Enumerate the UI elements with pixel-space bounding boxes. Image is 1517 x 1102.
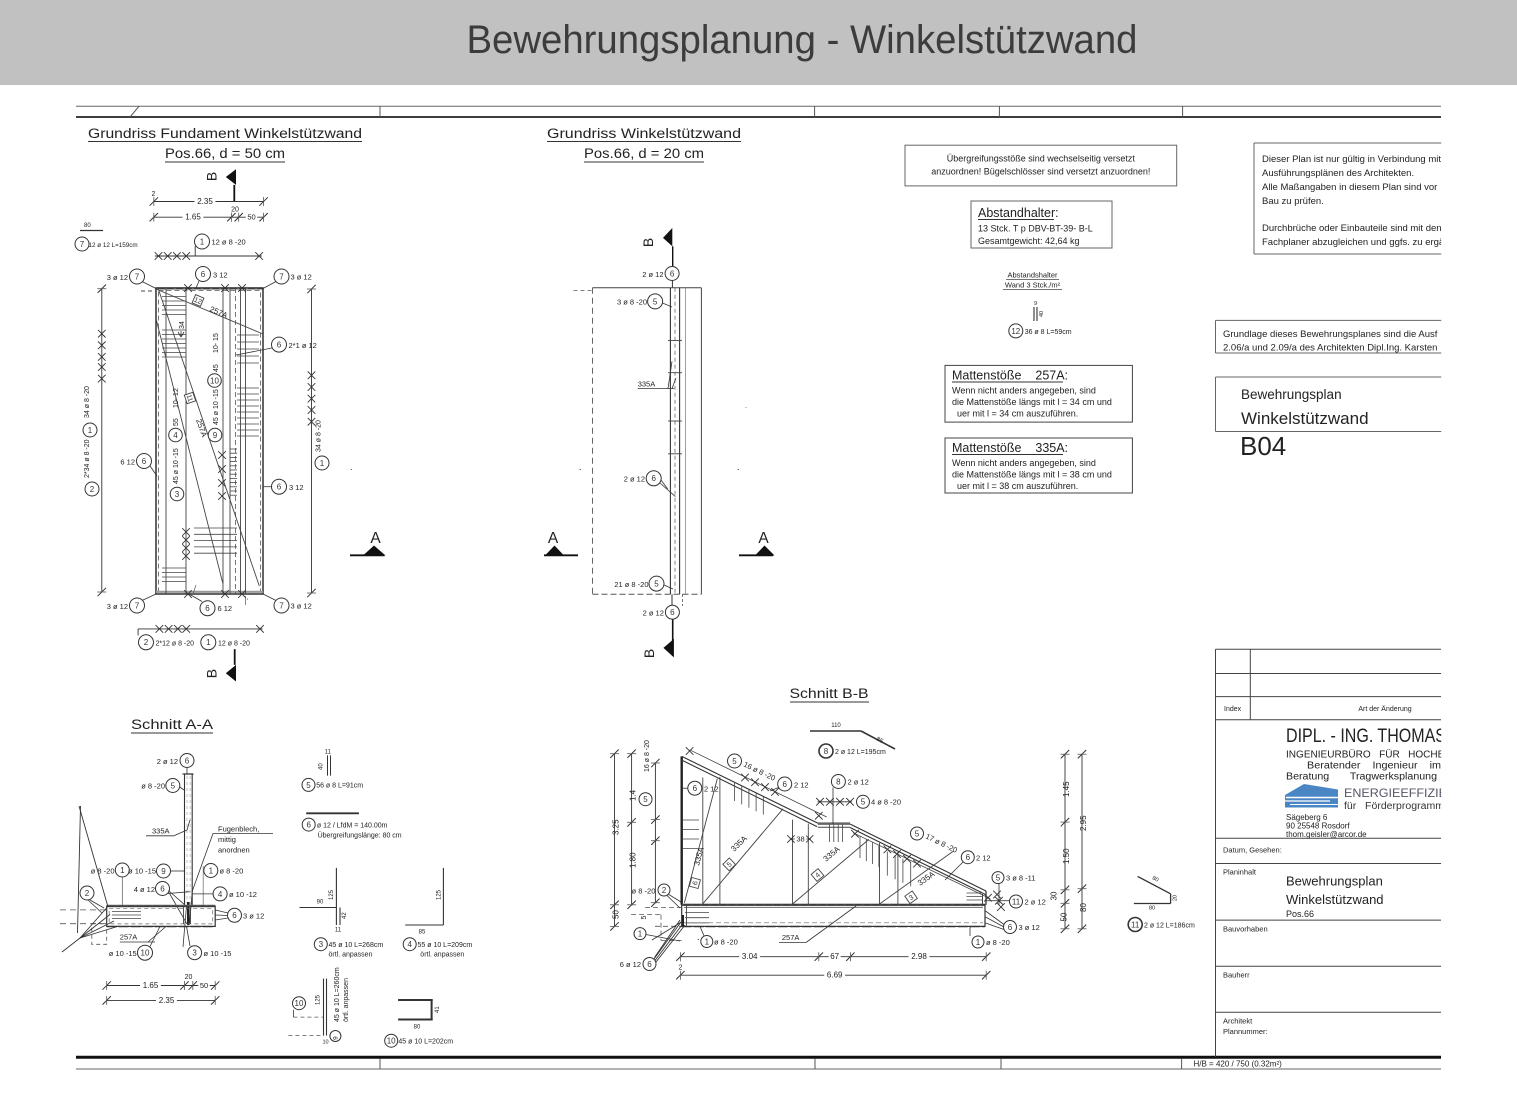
- svg-text:2: 2: [90, 485, 95, 494]
- svg-text:Dieser Plan ist nur gültig in: Dieser Plan ist nur gültig in Verbindung…: [1262, 154, 1460, 165]
- svg-text:örtl. anpassen: örtl. anpassen: [343, 978, 350, 1022]
- svg-text:56 ø 8 L=91cm: 56 ø 8 L=91cm: [316, 783, 363, 790]
- svg-text:Art der Änderung: Art der Änderung: [1358, 705, 1411, 713]
- svg-text:2 12: 2 12: [976, 854, 991, 863]
- svg-text:11: 11: [1131, 920, 1140, 929]
- svg-text:.: .: [737, 462, 740, 472]
- svg-text:5: 5: [643, 795, 648, 804]
- svg-text:335A: 335A: [822, 844, 843, 863]
- svg-text:17 ø 8 -20: 17 ø 8 -20: [924, 832, 959, 855]
- svg-text:20: 20: [231, 207, 239, 214]
- svg-text:1: 1: [200, 237, 205, 246]
- svg-text:2.98: 2.98: [911, 952, 927, 961]
- svg-text:.: .: [745, 403, 747, 410]
- svg-text:6: 6: [647, 960, 652, 969]
- svg-text:335A: 335A: [729, 834, 749, 854]
- svg-text:1: 1: [638, 930, 643, 939]
- svg-text:10- 15: 10- 15: [213, 333, 220, 353]
- svg-text:3 ø 12: 3 ø 12: [243, 912, 264, 921]
- svg-text:ø 8 -20: ø 8 -20: [714, 938, 738, 947]
- svg-text:B: B: [204, 172, 220, 181]
- svg-text:1: 1: [88, 426, 93, 435]
- svg-text:10: 10: [322, 1040, 328, 1046]
- svg-text:6: 6: [160, 884, 165, 893]
- svg-text:2: 2: [152, 191, 156, 198]
- svg-text:1.65: 1.65: [185, 213, 201, 222]
- svg-text:3 ø 12: 3 ø 12: [291, 273, 312, 282]
- svg-text:5: 5: [653, 297, 658, 306]
- svg-text:3: 3: [192, 949, 197, 958]
- svg-text:7: 7: [279, 272, 284, 281]
- svg-text:A: A: [548, 530, 559, 547]
- svg-text:örtl. anpassen: örtl. anpassen: [420, 952, 464, 959]
- svg-text:Abstandshalter: Abstandshalter: [1007, 271, 1058, 280]
- svg-text:40: 40: [319, 763, 325, 770]
- svg-text:Winkelstützwand: Winkelstützwand: [1241, 409, 1369, 428]
- svg-text:1.80: 1.80: [629, 852, 638, 868]
- svg-text:ø 12 / LfdM = 140.00m: ø 12 / LfdM = 140.00m: [317, 823, 388, 830]
- svg-text:257A: 257A: [208, 305, 229, 321]
- svg-text:3: 3: [175, 490, 180, 499]
- svg-text:mittig: mittig: [218, 835, 236, 844]
- svg-text:7: 7: [135, 601, 140, 610]
- svg-text:5: 5: [996, 874, 1001, 883]
- svg-text:ø 8 -20: ø 8 -20: [91, 867, 115, 876]
- svg-text:11: 11: [1012, 897, 1021, 906]
- svg-text:Abstandhalter:: Abstandhalter:: [978, 206, 1059, 220]
- svg-text:Grundriss Winkelstützwand: Grundriss Winkelstützwand: [547, 126, 741, 142]
- svg-text:34 ø 8 -20: 34 ø 8 -20: [316, 420, 323, 452]
- svg-text:ø 10 -12: ø 10 -12: [229, 890, 257, 899]
- svg-text:12: 12: [1011, 327, 1020, 336]
- svg-text:Grundlage dieses Bewehrungspla: Grundlage dieses Bewehrungsplanes sind d…: [1223, 329, 1438, 340]
- svg-text:20: 20: [185, 974, 193, 981]
- svg-text:9: 9: [213, 431, 218, 440]
- svg-text:10- 12: 10- 12: [173, 388, 180, 408]
- svg-text:anordnen: anordnen: [218, 846, 250, 855]
- svg-text:34 ø 8 -20: 34 ø 8 -20: [84, 386, 91, 418]
- svg-text:Schnitt B-B: Schnitt B-B: [790, 686, 869, 702]
- svg-text:10: 10: [210, 376, 219, 385]
- svg-text:21 ø 8 -20: 21 ø 8 -20: [614, 580, 648, 589]
- svg-text:Plannummer:: Plannummer:: [1223, 1027, 1268, 1036]
- svg-text:50: 50: [247, 213, 255, 222]
- svg-text:16 ø 8 -20: 16 ø 8 -20: [644, 740, 651, 772]
- svg-text:6: 6: [201, 270, 206, 279]
- svg-text:12 ø 8 -20: 12 ø 8 -20: [212, 238, 246, 247]
- svg-text:uer mit l = 34 cm auszuführen.: uer mit l = 34 cm auszuführen.: [957, 409, 1078, 419]
- svg-text:85: 85: [419, 930, 426, 936]
- svg-text:257A: 257A: [782, 933, 800, 942]
- svg-text:3: 3: [319, 940, 324, 949]
- svg-text:12 ø 8 -20: 12 ø 8 -20: [218, 640, 250, 647]
- svg-text:6.69: 6.69: [827, 971, 843, 980]
- svg-text:Pos.66, d = 50 cm: Pos.66, d = 50 cm: [165, 146, 285, 162]
- svg-text:5: 5: [654, 580, 659, 589]
- svg-text:5: 5: [732, 757, 737, 766]
- svg-text:6: 6: [277, 341, 282, 350]
- svg-text:10: 10: [295, 999, 304, 1008]
- svg-text:42: 42: [342, 912, 348, 919]
- svg-text:6: 6: [232, 911, 237, 920]
- svg-text:Alle Maßangaben in diesem Plan: Alle Maßangaben in diesem Plan sind vor: [1262, 182, 1437, 193]
- svg-text:die Mattenstöße längs mit l =: die Mattenstöße längs mit l = 34 cm und: [952, 397, 1112, 407]
- svg-text:Mattenstöße 257A:: Mattenstöße 257A:: [952, 369, 1068, 383]
- svg-text:2: 2: [679, 965, 683, 972]
- svg-text:Durchbrüche oder Einbauteile s: Durchbrüche oder Einbauteile sind mit de…: [1262, 223, 1442, 234]
- svg-text:B: B: [640, 238, 656, 247]
- svg-text:2: 2: [85, 889, 90, 898]
- svg-text:2.06/a und 2.09/a des Architek: 2.06/a und 2.09/a des Architekten Dipl.I…: [1223, 343, 1437, 354]
- svg-text:3 12: 3 12: [289, 483, 304, 492]
- svg-text:2: 2: [144, 638, 149, 647]
- svg-text:Pos.66, d = 20 cm: Pos.66, d = 20 cm: [584, 146, 704, 162]
- svg-text:Wenn nicht anders angegeben, s: Wenn nicht anders angegeben, sind: [952, 386, 1096, 396]
- svg-text:3 ø 8 -20: 3 ø 8 -20: [617, 298, 647, 307]
- svg-text:Beratender Ingenieur im: Beratender Ingenieur im: [1307, 761, 1441, 772]
- svg-text:335A: 335A: [638, 380, 656, 389]
- svg-text:80: 80: [1149, 906, 1155, 912]
- svg-text:ø 8 -20: ø 8 -20: [632, 887, 656, 896]
- svg-text:45 ø 10 L=202cm: 45 ø 10 L=202cm: [398, 1039, 453, 1046]
- svg-text:Grundriss Fundament Winkelstüt: Grundriss Fundament Winkelstützwand: [88, 126, 362, 142]
- svg-text:3 ø 12: 3 ø 12: [107, 602, 128, 611]
- svg-text:6: 6: [693, 784, 698, 793]
- svg-text:3.04: 3.04: [742, 952, 758, 961]
- svg-text:Übergreifungsstöße sind wechse: Übergreifungsstöße sind wechselseitig ve…: [947, 154, 1136, 164]
- svg-text:90: 90: [317, 900, 324, 906]
- svg-text:1.65: 1.65: [143, 981, 159, 990]
- svg-text:6: 6: [966, 853, 971, 862]
- svg-text:Übergreifungslänge: 80 cm: Übergreifungslänge: 80 cm: [318, 832, 402, 840]
- svg-text:6: 6: [782, 780, 787, 789]
- svg-text:45 ø 10 -15: 45 ø 10 -15: [213, 389, 220, 425]
- svg-text:2.35: 2.35: [159, 996, 175, 1005]
- svg-text:8: 8: [836, 777, 841, 786]
- svg-text:7: 7: [135, 272, 140, 281]
- svg-text:20: 20: [1173, 895, 1179, 901]
- svg-text:Beratung Tragwerksplanun: Beratung Tragwerksplanung: [1286, 772, 1437, 783]
- svg-text:6 ø 12: 6 ø 12: [620, 960, 641, 969]
- svg-text:6 12: 6 12: [120, 458, 135, 467]
- svg-text:A: A: [758, 530, 769, 547]
- svg-text:7: 7: [80, 240, 85, 249]
- svg-text:2*12 ø 8 -20: 2*12 ø 8 -20: [156, 640, 195, 647]
- svg-text:13 Stck. T p DBV-BT-39- B-L: 13 Stck. T p DBV-BT-39- B-L: [978, 224, 1093, 234]
- svg-text:9: 9: [333, 1036, 340, 1040]
- svg-text:5: 5: [641, 916, 648, 920]
- svg-text:.: .: [350, 462, 353, 472]
- svg-text:Datum, Gesehen:: Datum, Gesehen:: [1223, 846, 1282, 855]
- svg-text:2 ø 12 L=195cm: 2 ø 12 L=195cm: [835, 749, 886, 756]
- svg-text:2 ø 12: 2 ø 12: [643, 608, 664, 617]
- svg-text:55 ø 10 L=209cm: 55 ø 10 L=209cm: [418, 942, 473, 949]
- svg-text:3 12: 3 12: [213, 271, 228, 280]
- svg-text:Index: Index: [1224, 706, 1242, 713]
- svg-text:80: 80: [414, 1025, 421, 1031]
- svg-text:125: 125: [329, 889, 335, 900]
- svg-text:ø 8 -20: ø 8 -20: [220, 867, 244, 876]
- svg-text:.: .: [579, 462, 582, 472]
- svg-text:257A: 257A: [194, 418, 209, 439]
- svg-text:6: 6: [651, 474, 656, 483]
- svg-text:2 12: 2 12: [794, 781, 809, 790]
- svg-text:Wenn nicht anders angegeben, s: Wenn nicht anders angegeben, sind: [952, 458, 1096, 468]
- svg-text:6: 6: [142, 457, 147, 466]
- svg-text:für Förderprogramm: für Förderprogramm: [1344, 801, 1444, 812]
- svg-text:80: 80: [1079, 903, 1088, 912]
- svg-text:5: 5: [861, 798, 866, 807]
- svg-text:anzuordnen! Bügelschlösser sin: anzuordnen! Bügelschlösser sind versetzt…: [931, 167, 1150, 177]
- svg-text:Fugenblech,: Fugenblech,: [218, 825, 259, 834]
- svg-text:ø 10 -15: ø 10 -15: [128, 867, 156, 876]
- svg-text:DIPL. - ING. THOMAS: DIPL. - ING. THOMAS: [1286, 725, 1446, 747]
- svg-text:thom.geisler@arcor.de: thom.geisler@arcor.de: [1286, 830, 1367, 839]
- svg-text:Pos.66: Pos.66: [1286, 909, 1314, 919]
- svg-text:10: 10: [387, 1037, 396, 1046]
- svg-text:Architekt: Architekt: [1223, 1017, 1253, 1026]
- svg-text:H/B = 420 / 750 (0.32m²): H/B = 420 / 750 (0.32m²): [1194, 1060, 1283, 1069]
- svg-text:1.4: 1.4: [629, 789, 638, 801]
- svg-text:11: 11: [335, 928, 342, 934]
- svg-text:6: 6: [277, 483, 282, 492]
- svg-text:Planinhalt: Planinhalt: [1223, 868, 1257, 877]
- svg-text:A: A: [370, 530, 381, 547]
- svg-text:41: 41: [435, 1006, 441, 1013]
- svg-text:36 ø 8 L=59cm: 36 ø 8 L=59cm: [1025, 329, 1072, 336]
- svg-text:2*1 ø 12: 2*1 ø 12: [289, 341, 317, 350]
- svg-text:4: 4: [407, 940, 412, 949]
- svg-text:7: 7: [279, 601, 284, 610]
- svg-text:B: B: [204, 669, 220, 678]
- svg-text:2 ø 12 L=186cm: 2 ø 12 L=186cm: [1144, 922, 1195, 929]
- svg-text:1: 1: [320, 459, 325, 468]
- svg-text:6: 6: [205, 604, 210, 613]
- svg-text:11: 11: [325, 750, 332, 756]
- svg-text:örtl. anpassen: örtl. anpassen: [329, 952, 373, 959]
- svg-text:257A: 257A: [120, 933, 138, 942]
- svg-text:45 ø 10 L=268cm: 45 ø 10 L=268cm: [329, 942, 384, 949]
- svg-text:1: 1: [705, 937, 710, 946]
- svg-text:INGENIEURBÜRO FÜR HOCHBA: INGENIEURBÜRO FÜR HOCHBA: [1286, 749, 1451, 761]
- svg-text:30: 30: [1050, 891, 1059, 900]
- svg-text:4 ø 8 -20: 4 ø 8 -20: [871, 798, 901, 807]
- svg-text:10: 10: [141, 949, 150, 958]
- svg-text:4: 4: [218, 890, 223, 899]
- svg-text:2.35: 2.35: [197, 197, 213, 206]
- svg-text:3 ø 12: 3 ø 12: [107, 273, 128, 282]
- svg-text:6: 6: [670, 269, 675, 278]
- svg-text:12 ø 12 L=159cm: 12 ø 12 L=159cm: [89, 242, 138, 249]
- svg-text:Ausführungsplänen des Architek: Ausführungsplänen des Architekten.: [1262, 168, 1414, 179]
- svg-text:.: .: [697, 932, 700, 942]
- svg-text:ø 10 -15: ø 10 -15: [204, 949, 232, 958]
- svg-text:6: 6: [1008, 923, 1013, 932]
- svg-text:125: 125: [316, 994, 322, 1005]
- svg-text:Fachplaner abzugleichen und gg: Fachplaner abzugleichen und ggfs. zu erg…: [1262, 237, 1465, 248]
- svg-text:1.45: 1.45: [1062, 781, 1071, 797]
- svg-text:45 ø 10 L=260cm: 45 ø 10 L=260cm: [334, 967, 341, 1022]
- svg-text:125: 125: [437, 889, 443, 900]
- svg-text:die Mattenstöße längs mit l =: die Mattenstöße längs mit l = 38 cm und: [952, 470, 1112, 480]
- svg-text:67: 67: [830, 952, 839, 961]
- svg-text:2 ø 12: 2 ø 12: [642, 270, 663, 279]
- svg-text:ø 10 -15: ø 10 -15: [109, 949, 137, 958]
- svg-text:Schnitt A-A: Schnitt A-A: [131, 717, 214, 733]
- svg-text:1: 1: [120, 866, 125, 875]
- svg-text:6: 6: [185, 756, 190, 765]
- svg-text:335A: 335A: [152, 827, 170, 836]
- svg-text:85: 85: [875, 736, 884, 745]
- svg-text:3 ø 12: 3 ø 12: [1019, 923, 1040, 932]
- svg-text:ENERGIEEFFIZIE: ENERGIEEFFIZIE: [1344, 788, 1447, 800]
- svg-text:2 ø 12: 2 ø 12: [157, 757, 178, 766]
- svg-text:2: 2: [662, 886, 667, 895]
- svg-text:Bauherr: Bauherr: [1223, 971, 1250, 980]
- svg-text:80: 80: [1151, 875, 1159, 883]
- svg-text:6: 6: [306, 821, 311, 830]
- svg-text:2 ø 12: 2 ø 12: [624, 475, 645, 484]
- svg-text:9: 9: [161, 867, 166, 876]
- svg-text:4 ø 12: 4 ø 12: [134, 885, 155, 894]
- svg-text:1: 1: [976, 938, 981, 947]
- svg-text:50: 50: [612, 910, 621, 919]
- svg-text:5: 5: [915, 829, 920, 838]
- svg-text:6: 6: [670, 608, 675, 617]
- svg-text:5: 5: [306, 781, 311, 790]
- svg-text:3 ø 8 -11: 3 ø 8 -11: [1006, 874, 1035, 883]
- svg-text:Bewehrungsplan: Bewehrungsplan: [1241, 387, 1342, 402]
- svg-text:2 12: 2 12: [704, 785, 719, 794]
- svg-text:Bewehrungsplan: Bewehrungsplan: [1286, 874, 1383, 889]
- svg-text:uer mit l = 38 cm auszuführen.: uer mit l = 38 cm auszuführen.: [957, 481, 1078, 491]
- svg-text:B04: B04: [1240, 431, 1286, 461]
- svg-text:Wand 3 Stck./m²: Wand 3 Stck./m²: [1005, 281, 1061, 290]
- svg-text:9: 9: [1034, 301, 1037, 307]
- svg-text:': ': [247, 599, 248, 605]
- svg-text:55: 55: [173, 418, 180, 426]
- svg-text:Bauvorhaben: Bauvorhaben: [1223, 925, 1268, 934]
- svg-text:5: 5: [171, 781, 176, 790]
- svg-text:Winkelstützwand: Winkelstützwand: [1286, 892, 1384, 907]
- svg-text:50: 50: [1060, 912, 1069, 921]
- svg-text:34: 34: [179, 321, 186, 329]
- svg-text:40: 40: [1039, 311, 1045, 317]
- svg-text:6 12: 6 12: [218, 604, 233, 613]
- svg-text:Bau zu prüfen.: Bau zu prüfen.: [1262, 196, 1324, 207]
- svg-text:ø 8 -20: ø 8 -20: [986, 938, 1010, 947]
- svg-text:2 ø 12: 2 ø 12: [1025, 897, 1046, 906]
- svg-text:50: 50: [200, 981, 208, 990]
- svg-text:Mattenstöße 335A:: Mattenstöße 335A:: [952, 441, 1068, 455]
- svg-text:45 ø 10 -15: 45 ø 10 -15: [173, 448, 180, 484]
- svg-text:1.50: 1.50: [1062, 848, 1071, 864]
- svg-text:3 ø 12: 3 ø 12: [291, 602, 312, 611]
- svg-text:45: 45: [213, 364, 220, 372]
- svg-text:3.25: 3.25: [612, 819, 621, 835]
- svg-text:38: 38: [796, 835, 804, 844]
- svg-text:2.95: 2.95: [1079, 815, 1088, 831]
- svg-text:2 ø 12: 2 ø 12: [848, 778, 869, 787]
- svg-text:110: 110: [831, 723, 841, 729]
- svg-text:80: 80: [84, 223, 91, 229]
- svg-text:4: 4: [173, 431, 178, 440]
- svg-text:2*34 ø 8 -20: 2*34 ø 8 -20: [84, 439, 91, 478]
- svg-text:B: B: [641, 649, 657, 658]
- svg-text:Gesamtgewicht: 42,64 kg: Gesamtgewicht: 42,64 kg: [978, 236, 1080, 246]
- svg-text:8: 8: [824, 747, 829, 756]
- svg-text:1: 1: [209, 866, 214, 875]
- svg-text:1: 1: [206, 638, 211, 647]
- svg-text:ø 8 -20: ø 8 -20: [141, 782, 165, 791]
